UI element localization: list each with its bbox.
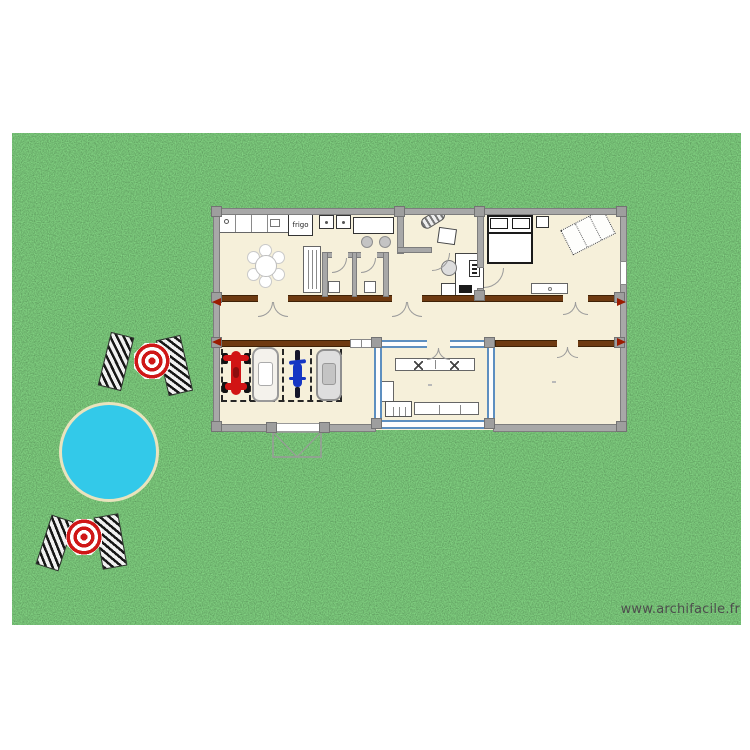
door-opening xyxy=(557,340,578,347)
kitchen-counter xyxy=(217,214,289,233)
parking-bay-line xyxy=(310,349,312,401)
knob xyxy=(548,287,552,291)
veranda-wall-bottom xyxy=(374,420,495,429)
divider xyxy=(308,250,309,289)
veranda-wall-left xyxy=(374,348,382,422)
sun-umbrella-icon xyxy=(66,519,102,555)
keyboard-icon xyxy=(459,285,472,293)
dresser xyxy=(531,283,568,294)
divider xyxy=(361,340,362,347)
bar-stool xyxy=(361,236,373,248)
wall-post xyxy=(616,421,627,432)
door-opening xyxy=(392,295,422,302)
divider xyxy=(312,250,313,289)
divider xyxy=(405,407,406,416)
wall-post xyxy=(394,206,405,217)
car-roof xyxy=(322,363,336,385)
window xyxy=(620,261,627,285)
closed-door xyxy=(350,339,373,348)
pillow xyxy=(512,218,530,229)
footpeg xyxy=(289,377,306,380)
divider xyxy=(316,250,317,289)
burner-dot xyxy=(342,221,345,224)
counter-unit xyxy=(414,402,479,415)
wardrobe-unit xyxy=(395,358,475,371)
double-bed xyxy=(487,215,533,264)
partition-wall xyxy=(397,247,432,253)
bike-body xyxy=(293,363,302,387)
wall-post xyxy=(484,337,495,348)
bar-stool xyxy=(379,236,391,248)
wall-post xyxy=(266,422,277,433)
wall-post xyxy=(371,418,382,429)
wall-post xyxy=(474,290,485,301)
wall-post xyxy=(484,418,495,429)
door-opening xyxy=(563,295,588,302)
motorcycle-icon xyxy=(289,350,306,398)
divider xyxy=(399,407,400,416)
floor-plan-scene: frigo xyxy=(0,0,750,750)
wall-post xyxy=(211,206,222,217)
wc-wall-right xyxy=(383,252,389,297)
nightstand xyxy=(536,216,549,228)
exterior-wall-bottom xyxy=(493,424,627,432)
parking-bay-line xyxy=(282,349,284,401)
x-mark-icon xyxy=(450,361,459,370)
divider xyxy=(439,405,440,414)
round-pool xyxy=(59,402,159,502)
car-icon xyxy=(252,347,279,402)
room-label-dot xyxy=(428,384,432,386)
pillow xyxy=(490,218,508,229)
rug-line xyxy=(575,224,588,248)
dining-set xyxy=(244,244,288,288)
rug-line xyxy=(589,216,602,240)
stove-burner xyxy=(319,215,334,229)
door-opening xyxy=(258,295,288,302)
quad-handlebar xyxy=(223,355,249,361)
wall-post xyxy=(371,337,382,348)
entrance-arrow-icon xyxy=(212,338,221,346)
side-table xyxy=(437,227,457,245)
divider xyxy=(435,360,436,369)
entrance-arrow-icon xyxy=(617,338,626,346)
sink-faucet-icon xyxy=(224,219,229,224)
sink-basin-icon xyxy=(270,219,280,227)
wc-wall-left xyxy=(322,252,328,297)
exterior-wall-right xyxy=(620,208,627,432)
exterior-wall-top xyxy=(213,208,627,215)
quad-bike-icon xyxy=(222,349,250,397)
wc-fixture xyxy=(364,281,376,293)
wall-post xyxy=(211,421,222,432)
laundry-machine xyxy=(385,401,412,417)
car-roof xyxy=(258,362,273,386)
fridge: frigo xyxy=(288,214,313,236)
divider xyxy=(235,215,236,232)
wheel xyxy=(295,387,300,398)
divider xyxy=(460,405,461,414)
vent xyxy=(472,268,477,270)
umbrella-group-upper xyxy=(100,330,192,396)
divider xyxy=(267,215,268,232)
quad-rear xyxy=(225,383,247,390)
vent xyxy=(472,272,477,274)
wc-fixture xyxy=(328,281,340,293)
wall-post xyxy=(474,206,485,217)
wall-post xyxy=(616,206,627,217)
x-mark-icon xyxy=(414,361,423,370)
wc-wall-divider xyxy=(352,252,357,297)
exterior-wall-left xyxy=(213,208,220,432)
entrance-arrow-icon xyxy=(617,298,626,306)
round-dining-table xyxy=(255,255,277,277)
room-label-dot xyxy=(552,381,556,383)
car-icon xyxy=(316,349,342,401)
wall-post xyxy=(319,422,330,433)
umbrella-group-lower xyxy=(38,508,128,572)
tall-cabinet xyxy=(303,246,321,293)
divider xyxy=(251,215,252,232)
fridge-label: frigo xyxy=(289,215,312,235)
bar-table xyxy=(353,217,394,234)
quad-seat xyxy=(233,367,239,378)
partition-wall xyxy=(477,214,484,268)
burner-dot xyxy=(325,221,328,224)
veranda-wall-right xyxy=(487,348,495,422)
watermark: www.archifacile.fr xyxy=(0,602,740,617)
blanket-line xyxy=(489,232,531,234)
stove-burner xyxy=(336,215,351,229)
entrance-arrow-icon xyxy=(212,298,221,306)
door-opening xyxy=(427,340,450,348)
garage-door-icon xyxy=(272,431,322,458)
sun-lounger xyxy=(98,332,135,391)
divider xyxy=(393,407,394,416)
